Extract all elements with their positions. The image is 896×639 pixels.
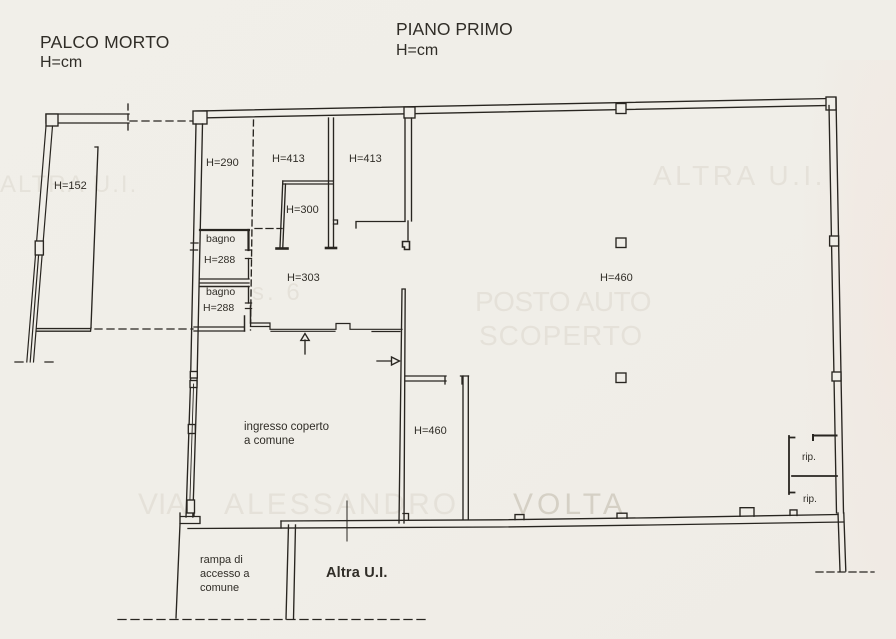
svg-text:accesso a: accesso a bbox=[200, 568, 250, 580]
svg-text:ALESSANDRO: ALESSANDRO bbox=[224, 488, 459, 521]
svg-text:H=303: H=303 bbox=[287, 272, 320, 284]
svg-text:H=152: H=152 bbox=[54, 180, 87, 192]
svg-text:H=460: H=460 bbox=[414, 425, 447, 437]
svg-text:rip.: rip. bbox=[802, 452, 816, 463]
svg-text:PIANO PRIMO: PIANO PRIMO bbox=[396, 19, 513, 39]
svg-text:H=288: H=288 bbox=[203, 302, 234, 314]
svg-text:ALTRA U.I.: ALTRA U.I. bbox=[653, 160, 826, 191]
svg-text:comune: comune bbox=[200, 582, 239, 594]
svg-text:H=290: H=290 bbox=[206, 157, 239, 169]
svg-text:VIA: VIA bbox=[138, 488, 186, 521]
svg-text:rip.: rip. bbox=[803, 494, 817, 505]
svg-text:H=460: H=460 bbox=[600, 272, 633, 284]
svg-text:Altra U.I.: Altra U.I. bbox=[326, 565, 388, 581]
svg-text:ingresso coperto: ingresso coperto bbox=[244, 421, 329, 433]
svg-text:VOLTA: VOLTA bbox=[513, 488, 627, 521]
svg-text:SCOPERTO: SCOPERTO bbox=[479, 320, 643, 351]
svg-text:H=cm: H=cm bbox=[396, 42, 438, 59]
svg-text:POSTO AUTO: POSTO AUTO bbox=[475, 286, 651, 317]
svg-text:H=413: H=413 bbox=[349, 153, 382, 165]
svg-text:H=413: H=413 bbox=[272, 153, 305, 165]
svg-text:H=288: H=288 bbox=[204, 254, 235, 266]
svg-text:H=cm: H=cm bbox=[40, 54, 82, 71]
svg-text:a comune: a comune bbox=[244, 435, 295, 447]
svg-text:bagno: bagno bbox=[206, 286, 235, 298]
svg-text:PALCO MORTO: PALCO MORTO bbox=[40, 32, 170, 52]
svg-text:rampa di: rampa di bbox=[200, 554, 243, 566]
svg-text:H=300: H=300 bbox=[286, 204, 319, 216]
svg-text:bagno: bagno bbox=[206, 233, 235, 245]
